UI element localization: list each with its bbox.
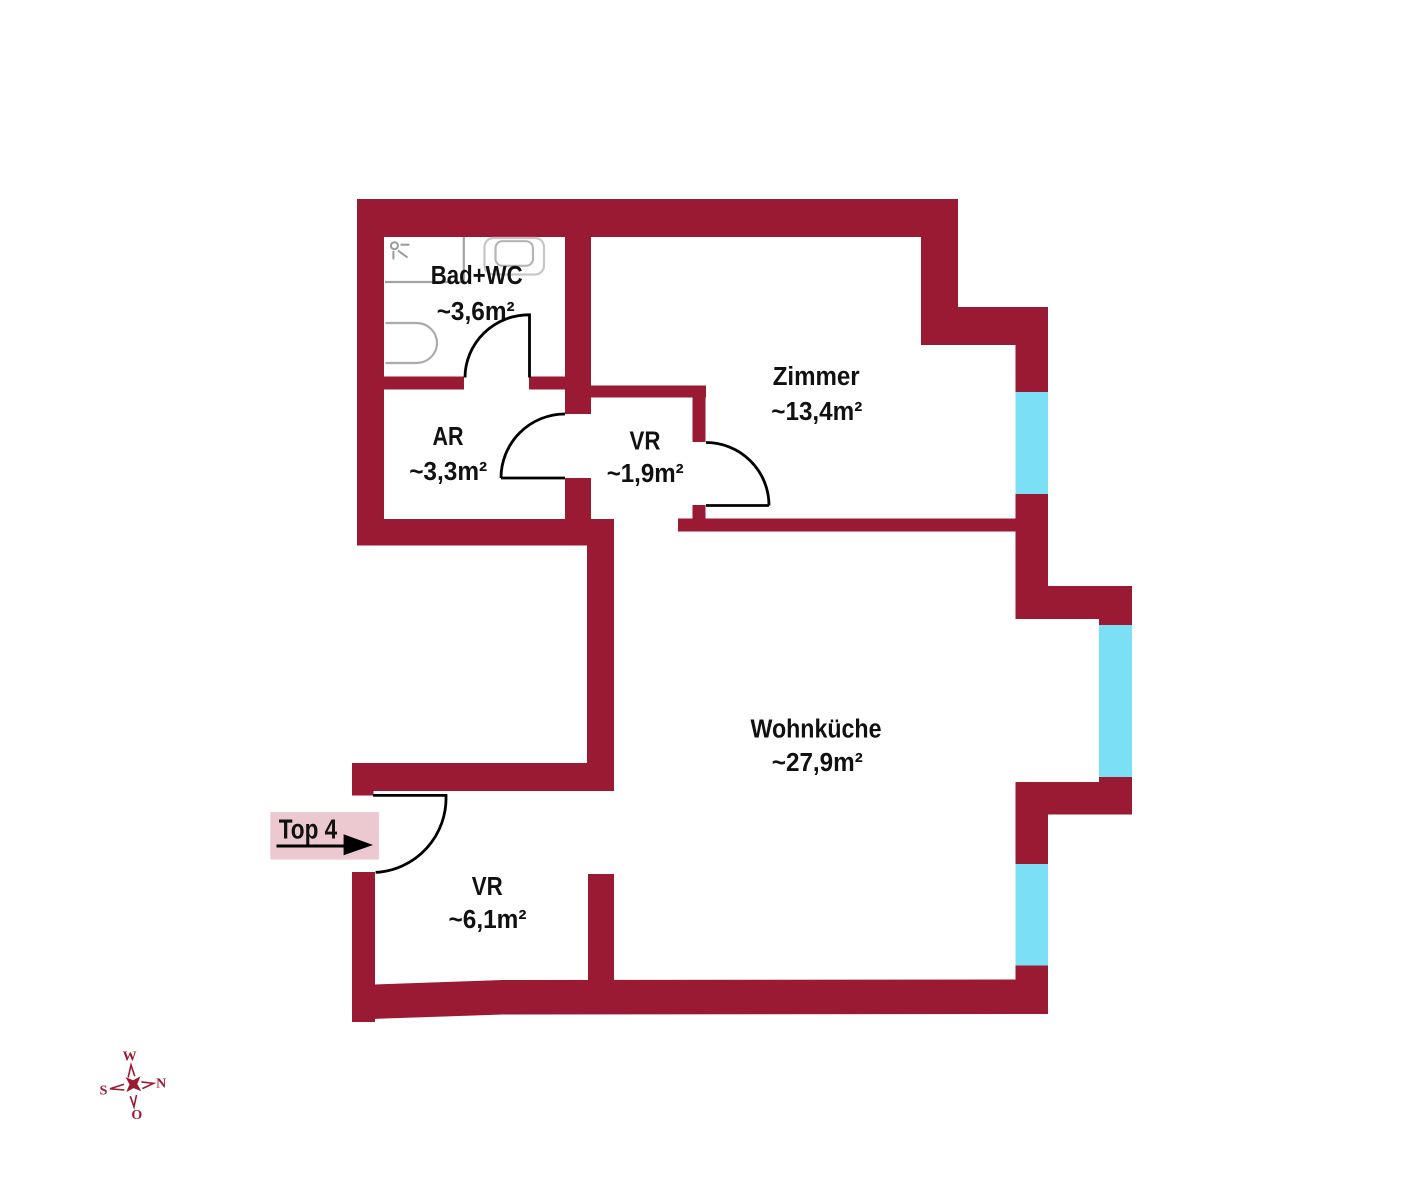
svg-text:~13,4m²: ~13,4m² bbox=[771, 398, 862, 426]
svg-text:Zimmer: Zimmer bbox=[773, 363, 860, 391]
svg-text:S: S bbox=[100, 1084, 108, 1099]
svg-text:~27,9m²: ~27,9m² bbox=[772, 749, 863, 777]
svg-text:~1,9m²: ~1,9m² bbox=[607, 460, 684, 488]
svg-text:W: W bbox=[123, 1050, 137, 1065]
svg-text:O: O bbox=[131, 1108, 142, 1123]
svg-text:Bad+WC: Bad+WC bbox=[431, 262, 523, 290]
svg-text:~6,1m²: ~6,1m² bbox=[449, 906, 527, 934]
svg-text:Wohnküche: Wohnküche bbox=[751, 716, 882, 744]
svg-text:VR: VR bbox=[630, 428, 661, 456]
svg-text:Top 4: Top 4 bbox=[279, 814, 338, 845]
svg-text:~3,6m²: ~3,6m² bbox=[437, 298, 515, 326]
svg-text:~3,3m²: ~3,3m² bbox=[409, 458, 487, 486]
svg-text:VR: VR bbox=[472, 873, 503, 901]
svg-text:AR: AR bbox=[433, 423, 464, 451]
svg-text:N: N bbox=[156, 1077, 166, 1092]
